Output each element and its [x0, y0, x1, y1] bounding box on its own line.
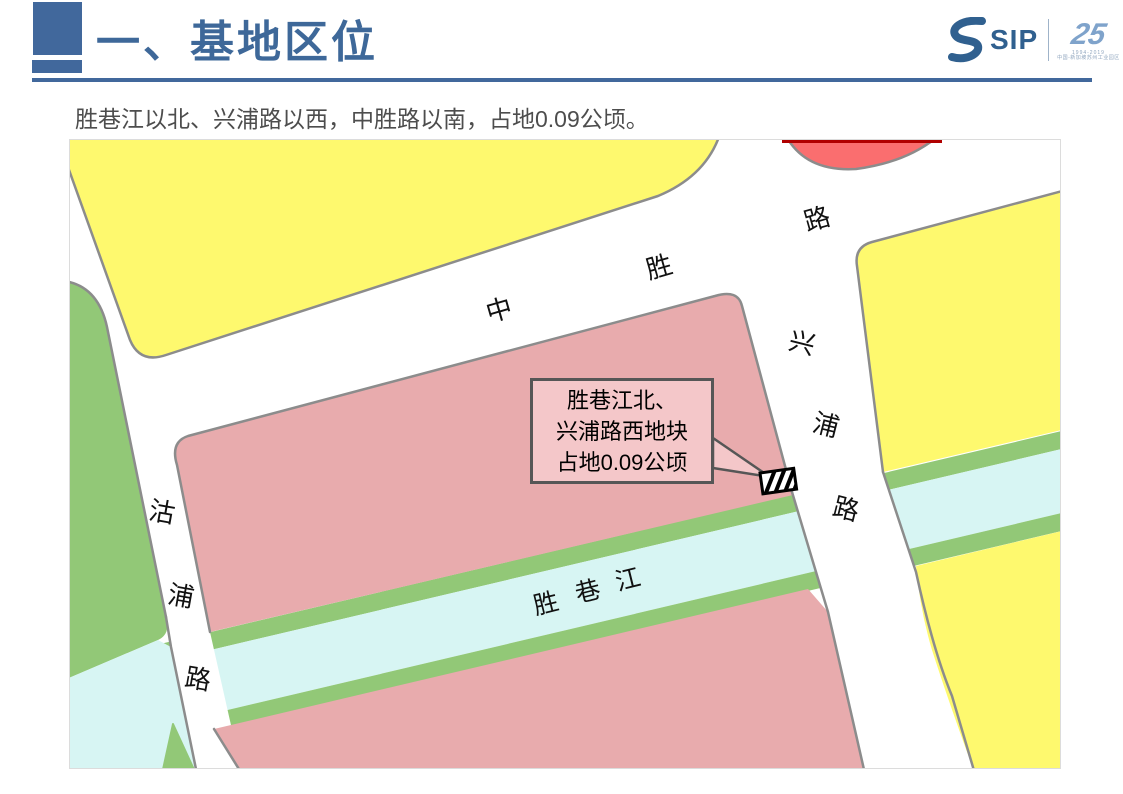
anniversary-25-text: 25 [1069, 20, 1109, 50]
callout-line-1: 胜巷江北、 [533, 385, 711, 416]
callout-line-3: 占地0.09公顷 [533, 447, 711, 478]
anniversary-org: 中国-新加坡苏州工业园区 [1057, 56, 1120, 61]
road-label-gupu-3: 路 [183, 662, 214, 696]
road-label-zhongsheng-2: 胜 [642, 249, 675, 285]
page-title: 一、基地区位 [96, 6, 378, 70]
sip-s-swoosh-icon [946, 17, 988, 63]
site-callout: 胜巷江北、 兴浦路西地块 占地0.09公顷 [530, 378, 714, 484]
slide: 一、基地区位 SIP 25 1994-2019 中国-新加坡苏州工业园区 胜巷江… [0, 0, 1123, 794]
callout-line-2: 兴浦路西地块 [533, 416, 711, 447]
logo-divider [1048, 19, 1049, 61]
header-accent-square [33, 2, 82, 55]
road-label-gupu-1: 沽 [147, 495, 178, 529]
header-rule [32, 78, 1092, 82]
anniversary-logo: 25 1994-2019 中国-新加坡苏州工业园区 [1057, 20, 1120, 61]
location-map: 中 胜 路 兴 浦 路 沽 浦 路 胜 巷 江 [69, 139, 1061, 769]
header-accent-bar [32, 60, 82, 73]
sip-logo: SIP 25 1994-2019 中国-新加坡苏州工业园区 [946, 14, 1120, 66]
road-label-zhongsheng-1: 中 [482, 292, 515, 328]
road-label-gupu-2: 浦 [166, 579, 197, 613]
parcel-yellow-northeast [857, 190, 1060, 472]
subtitle: 胜巷江以北、兴浦路以西，中胜路以南，占地0.09公顷。 [75, 100, 649, 134]
sip-logo-text: SIP [990, 24, 1038, 56]
